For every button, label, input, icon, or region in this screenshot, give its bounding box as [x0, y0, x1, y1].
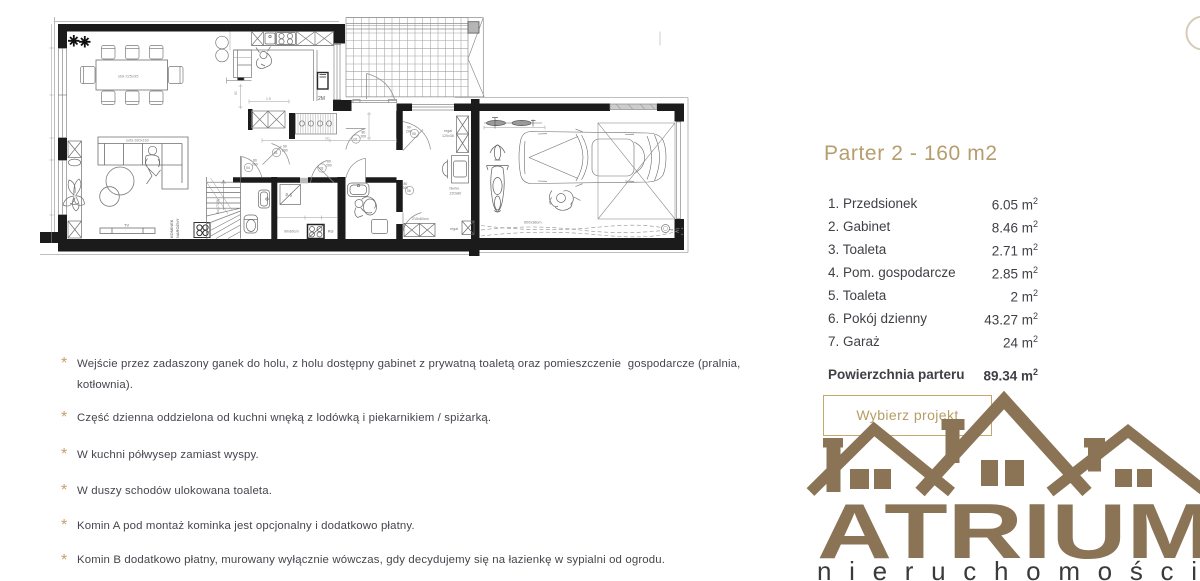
- svg-text:05: 05: [412, 132, 416, 136]
- svg-text:220x80: 220x80: [450, 192, 462, 196]
- svg-text:200: 200: [361, 135, 367, 139]
- svg-text:stół 225x95: stół 225x95: [118, 74, 139, 79]
- svg-text:03: 03: [320, 167, 324, 171]
- svg-text:04: 04: [246, 166, 250, 170]
- svg-text:TV: TV: [124, 223, 129, 228]
- svg-text:biurko: biurko: [450, 187, 460, 191]
- svg-text:90: 90: [234, 91, 238, 95]
- svg-text:200: 200: [252, 163, 258, 167]
- svg-text:2M: 2M: [318, 96, 325, 102]
- svg-text:90x60cm: 90x60cm: [284, 230, 299, 234]
- svg-text:NAROŻNY: NAROŻNY: [175, 218, 180, 238]
- svg-text:200: 200: [403, 186, 409, 190]
- svg-text:215x60cm: 215x60cm: [412, 217, 429, 221]
- svg-text:KG: KG: [328, 230, 334, 234]
- svg-text:KOMINEK: KOMINEK: [169, 219, 174, 238]
- svg-text:120x38: 120x38: [442, 134, 454, 138]
- svg-text:regał: regał: [450, 227, 458, 231]
- svg-text:5x(17/29): 5x(17/29): [216, 199, 220, 214]
- svg-text:200: 200: [406, 130, 412, 134]
- svg-text:1C: 1C: [325, 137, 330, 141]
- svg-text:200: 200: [282, 149, 288, 153]
- svg-text:600x38cm: 600x38cm: [524, 221, 542, 225]
- svg-text:P-5: P-5: [286, 193, 293, 198]
- svg-text:02: 02: [354, 138, 358, 142]
- svg-text:01: 01: [274, 151, 278, 155]
- svg-text:200: 200: [326, 164, 332, 168]
- svg-text:regał: regał: [444, 129, 452, 133]
- svg-text:sofa 280x160: sofa 280x160: [126, 139, 149, 143]
- svg-text:nieruchomości: nieruchomości: [817, 556, 1197, 581]
- svg-text:1.5: 1.5: [266, 97, 271, 101]
